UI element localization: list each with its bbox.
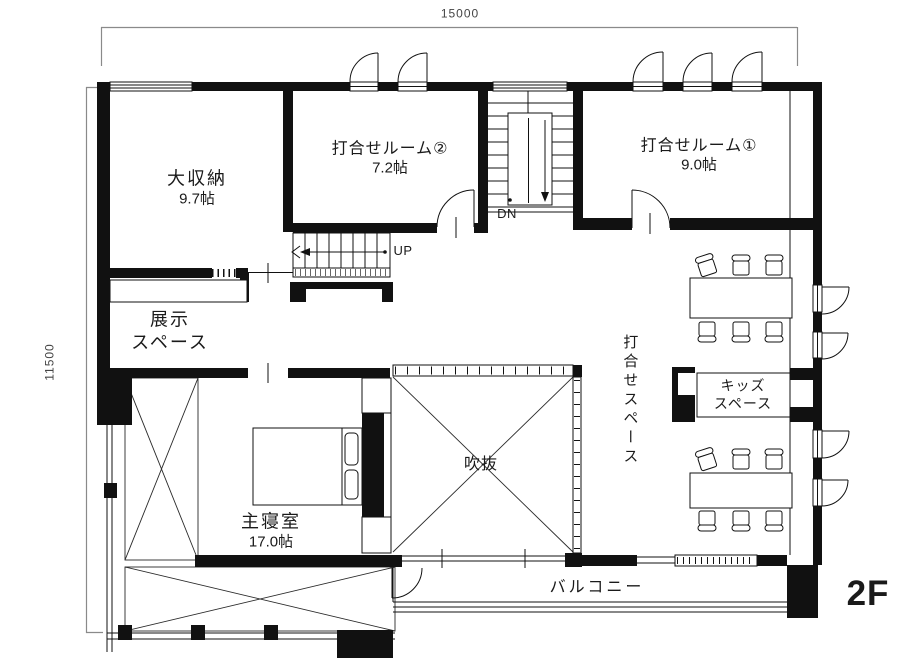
room-name: 打合せルーム② bbox=[332, 140, 449, 160]
room-label-meeting1: 打合せルーム① 9.0帖 bbox=[641, 137, 758, 176]
dimension-left-label: 11500 bbox=[43, 343, 58, 380]
room-label-meeting-space: 打合せスペース bbox=[620, 334, 639, 467]
meeting-table bbox=[690, 278, 792, 318]
room-name: 打合せルーム① bbox=[641, 137, 758, 157]
room-name: 大収納 bbox=[167, 167, 227, 190]
room-name: スペース bbox=[131, 331, 209, 354]
door-arc-icon bbox=[732, 52, 762, 82]
room-label-exhibit: 展示 スペース bbox=[131, 309, 209, 354]
cabinet bbox=[362, 378, 391, 413]
door-arc-icon bbox=[822, 333, 848, 359]
door-arc-icon bbox=[822, 480, 848, 506]
bed bbox=[253, 428, 362, 505]
floorplan-2f: 15000 11500 大収納 9.7帖 打合せルーム② 7.2帖 打合せルーム… bbox=[0, 0, 900, 663]
room-area: 9.7帖 bbox=[167, 190, 227, 209]
dimension-top-label: 15000 bbox=[441, 7, 479, 22]
room-label-storage: 大収納 9.7帖 bbox=[167, 167, 227, 208]
room-name: スペース bbox=[714, 395, 772, 413]
stairs-down-label: DN bbox=[497, 206, 517, 222]
room-area: 17.0帖 bbox=[241, 533, 301, 552]
door-arc-icon bbox=[822, 431, 849, 458]
chair bbox=[765, 449, 783, 469]
cabinet bbox=[362, 517, 391, 553]
chair bbox=[732, 322, 750, 342]
floor-indicator: 2F bbox=[847, 572, 890, 616]
chair bbox=[765, 255, 783, 275]
room-name: 主寝室 bbox=[241, 510, 301, 533]
door-arc-icon bbox=[822, 287, 849, 314]
door-arc-icon bbox=[350, 53, 378, 82]
stairs-down bbox=[488, 91, 582, 212]
chair bbox=[732, 511, 750, 531]
door-arc-icon bbox=[633, 52, 663, 82]
room-name: キッズ bbox=[714, 378, 772, 396]
room-area: 9.0帖 bbox=[641, 157, 758, 176]
chair bbox=[732, 449, 750, 469]
chair bbox=[765, 511, 783, 531]
stairs-up bbox=[292, 233, 390, 277]
room-label-void: 吹抜 bbox=[464, 455, 498, 475]
meeting-table bbox=[690, 473, 792, 508]
chair bbox=[695, 447, 718, 472]
chair bbox=[698, 511, 716, 531]
room-label-bedroom: 主寝室 17.0帖 bbox=[241, 510, 301, 551]
door-arc-icon bbox=[392, 568, 422, 598]
room-label-meeting2: 打合せルーム② 7.2帖 bbox=[332, 140, 449, 179]
exhibit-counter bbox=[110, 280, 247, 302]
door-arc-icon bbox=[683, 53, 712, 82]
chair bbox=[732, 255, 750, 275]
room-label-kids: キッズ スペース bbox=[714, 378, 772, 413]
door-arc-icon bbox=[632, 190, 670, 228]
chair bbox=[698, 322, 716, 342]
room-label-balcony: バルコニー bbox=[550, 578, 645, 598]
chair bbox=[765, 322, 783, 342]
chair bbox=[695, 253, 718, 278]
door-arc-icon bbox=[398, 53, 427, 82]
room-area: 7.2帖 bbox=[332, 160, 449, 179]
stairs-up-label: UP bbox=[393, 243, 412, 259]
opening-ticks bbox=[268, 213, 650, 568]
room-name: 展示 bbox=[131, 309, 209, 332]
